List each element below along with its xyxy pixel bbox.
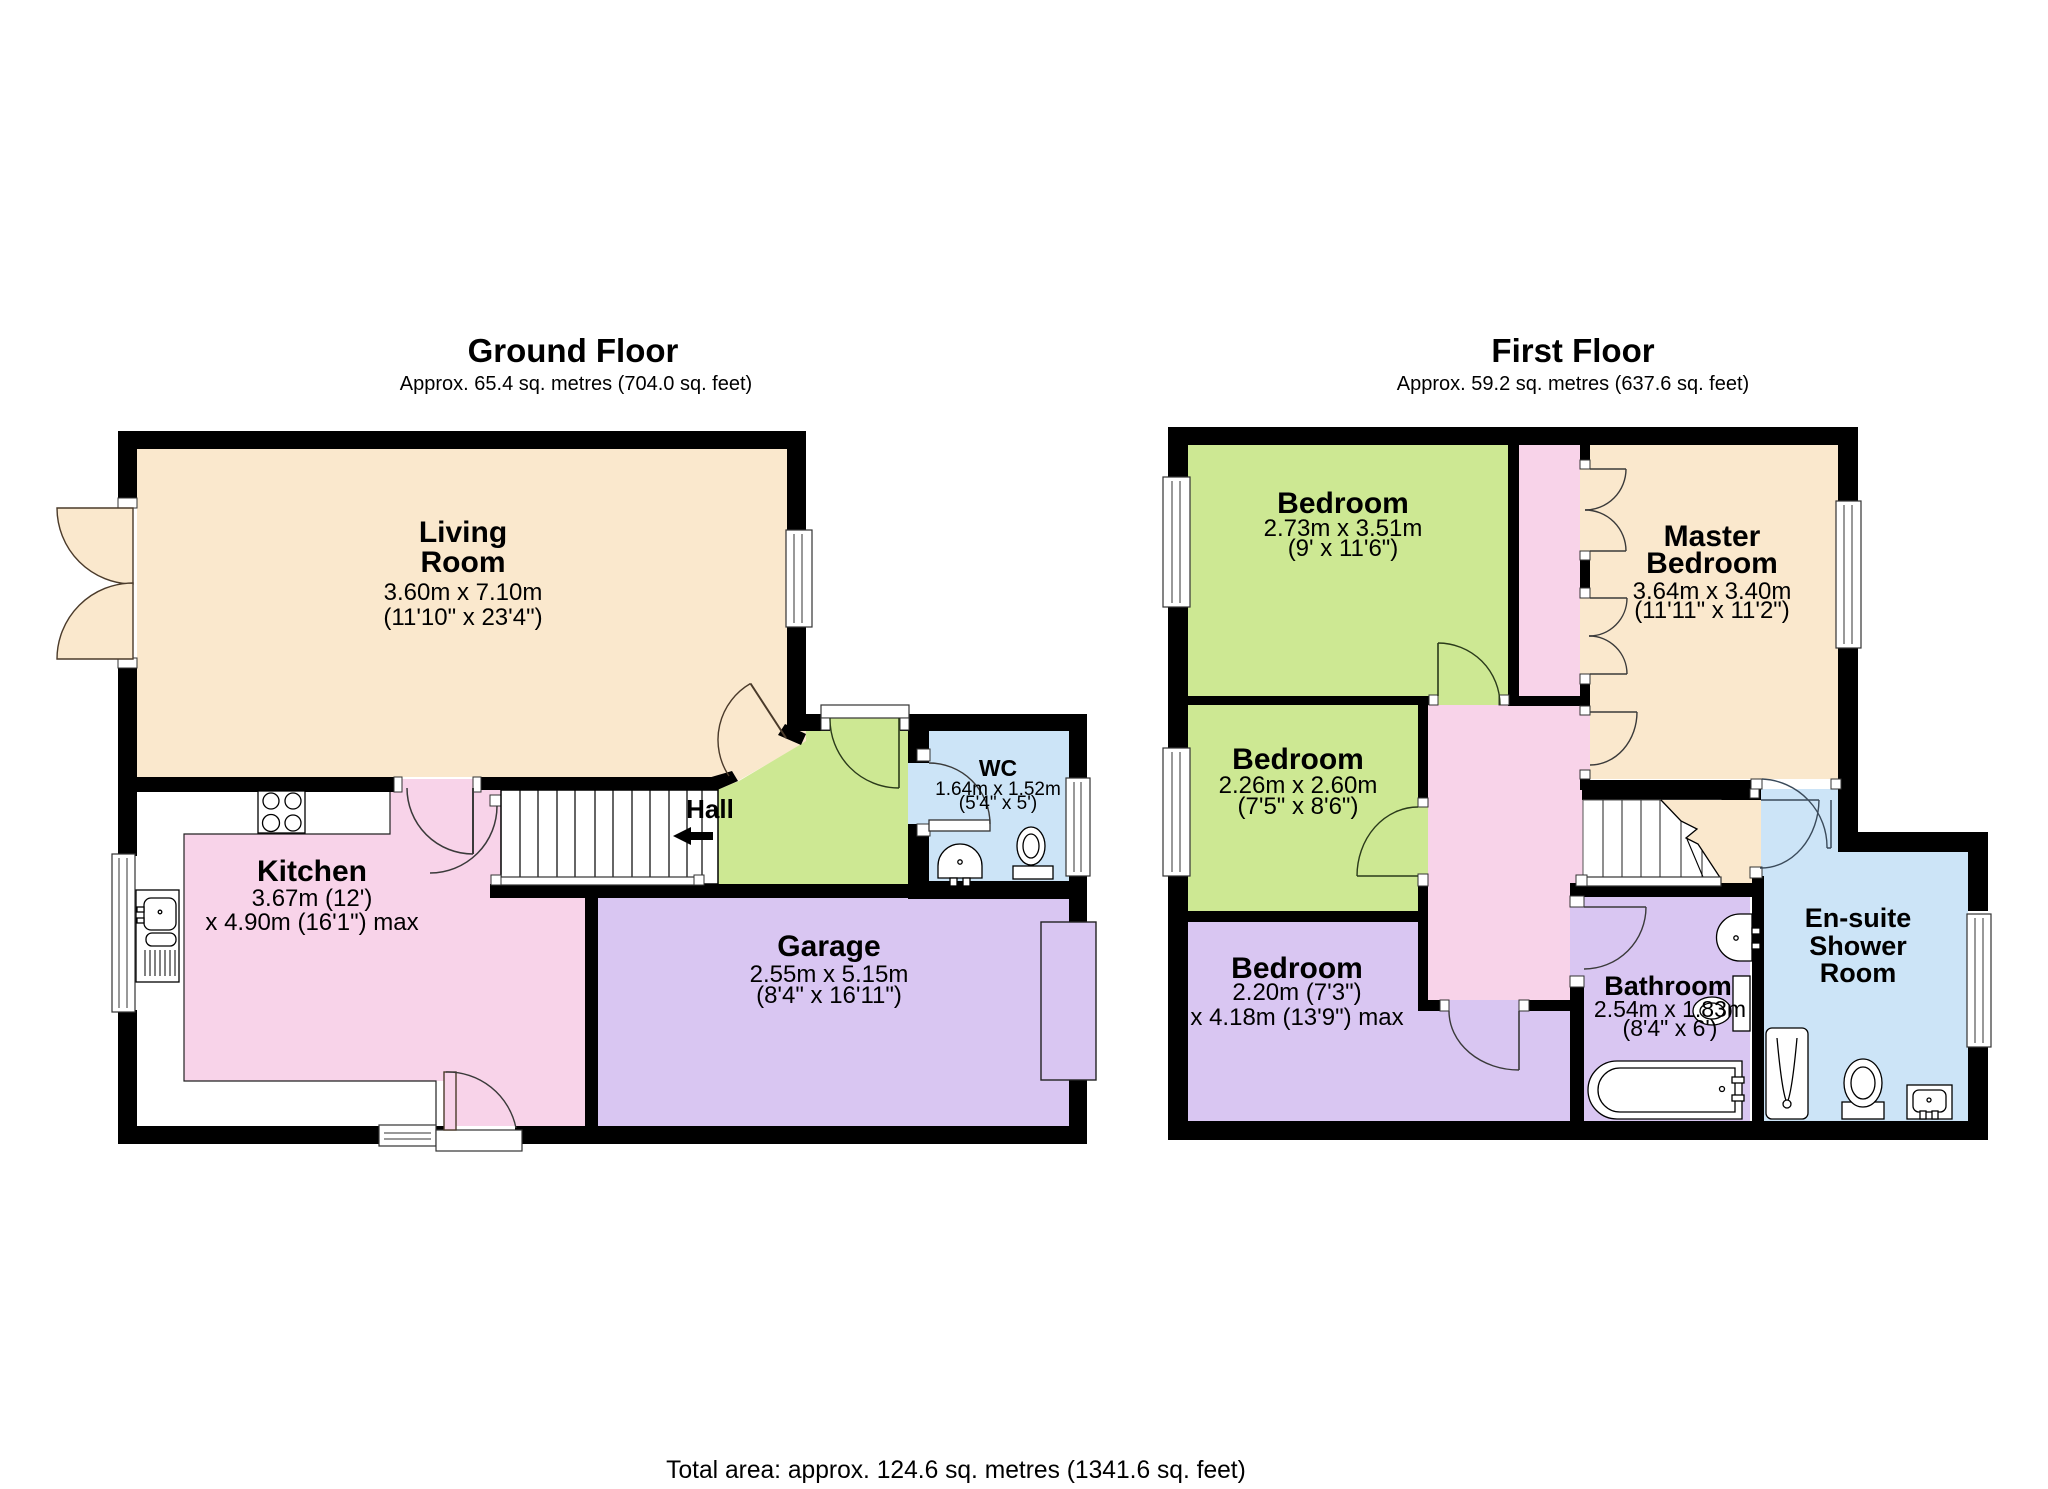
svg-text:Ground Floor: Ground Floor [468, 332, 679, 369]
svg-text:Living: Living [419, 516, 507, 549]
svg-text:(7'5" x 8'6"): (7'5" x 8'6") [1238, 793, 1359, 820]
svg-text:(8'4" x 16'11"): (8'4" x 16'11") [756, 982, 902, 1009]
svg-text:2.20m (7'3"): 2.20m (7'3") [1232, 979, 1361, 1006]
svg-text:3.60m x 7.10m: 3.60m x 7.10m [384, 579, 543, 606]
svg-text:(5'4" x 5'): (5'4" x 5') [959, 793, 1037, 814]
svg-text:Total area: approx. 124.6 sq.: Total area: approx. 124.6 sq. metres (13… [666, 1457, 1246, 1484]
svg-text:Approx. 59.2 sq. metres (637.6: Approx. 59.2 sq. metres (637.6 sq. feet) [1397, 373, 1749, 395]
svg-text:WC: WC [979, 755, 1017, 781]
svg-text:Bedroom: Bedroom [1646, 547, 1778, 580]
svg-text:Approx. 65.4 sq. metres (704.0: Approx. 65.4 sq. metres (704.0 sq. feet) [400, 373, 752, 395]
svg-text:x 4.90m (16'1") max: x 4.90m (16'1") max [205, 909, 418, 936]
svg-text:First Floor: First Floor [1491, 332, 1654, 369]
svg-text:(11'11" x 11'2"): (11'11" x 11'2") [1634, 597, 1790, 624]
svg-text:Room: Room [1820, 958, 1897, 988]
svg-text:(11'10" x 23'4"): (11'10" x 23'4") [383, 604, 542, 631]
svg-text:Kitchen: Kitchen [257, 855, 367, 888]
svg-text:Garage: Garage [777, 930, 880, 963]
svg-text:En-suite: En-suite [1805, 903, 1912, 933]
svg-text:(8'4" x 6'): (8'4" x 6') [1623, 1015, 1718, 1041]
svg-text:x 4.18m (13'9") max: x 4.18m (13'9") max [1190, 1004, 1403, 1031]
svg-text:Hall: Hall [686, 794, 734, 824]
svg-text:Shower: Shower [1809, 931, 1907, 961]
svg-text:Room: Room [421, 546, 506, 579]
svg-text:(9' x 11'6"): (9' x 11'6") [1288, 535, 1399, 562]
svg-text:3.67m (12'): 3.67m (12') [252, 885, 373, 912]
